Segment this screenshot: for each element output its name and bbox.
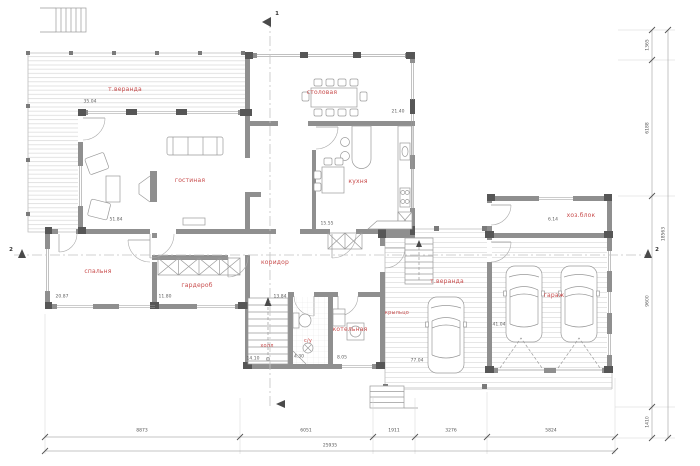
room-area-living: 51.84 — [110, 218, 123, 223]
section-marker-2-right: 2 — [655, 247, 659, 253]
dim-right-3: 1410 — [646, 416, 651, 427]
room-area-garage: 41.04 — [493, 323, 506, 328]
dining-room-furniture — [302, 79, 367, 116]
room-area-utility: 6.14 — [548, 218, 558, 223]
room-area-wardrobe: 11.80 — [159, 295, 172, 300]
room-area-wc: 4.30 — [294, 355, 304, 360]
room-area-boiler: 8.05 — [337, 356, 347, 361]
room-label-bedroom: спальня — [84, 269, 111, 275]
room-label-boiler: котельная — [333, 327, 368, 333]
corridor-closet — [328, 233, 362, 249]
staircase-main — [248, 297, 288, 364]
dim-bottom-3: 3276 — [445, 429, 456, 434]
room-area-carport: 77.04 — [411, 359, 424, 364]
dim-bottom-2: 1911 — [388, 429, 399, 434]
room-label-terrace: т.веранда — [108, 87, 142, 93]
steps-terrace-top — [40, 8, 86, 32]
floor-plan-drawing — [0, 0, 700, 466]
dim-bottom-0: 8873 — [136, 429, 147, 434]
dim-bottom-1: 6051 — [300, 429, 311, 434]
dim-right-0: 1365 — [646, 39, 651, 50]
car-garage-1 — [504, 266, 545, 342]
room-label-kitchen: кухня — [348, 179, 367, 185]
fireplace — [150, 171, 157, 202]
room-area-dining: 21.40 — [392, 110, 405, 115]
room-label-garage: гараж — [544, 293, 565, 299]
room-area-hall: 14.10 — [247, 357, 260, 362]
boiler-fixtures — [333, 309, 364, 340]
room-label-corridor: коридор — [261, 260, 289, 266]
room-area-kitchen: 15.55 — [321, 222, 334, 227]
room-label-wc: с/у — [304, 338, 312, 344]
dim-bottom-total: 25935 — [323, 444, 337, 449]
steps-porch-east — [405, 238, 433, 284]
room-area-corridor: 13.84 — [274, 295, 287, 300]
car-driveway — [426, 297, 467, 373]
room-label-carport: т.веранда — [430, 279, 464, 285]
room-label-hall: холл — [260, 343, 273, 349]
room-label-porch: крыльцо — [385, 310, 409, 316]
room-area-terrace: 35.04 — [84, 100, 97, 105]
room-label-living: гостиная — [175, 178, 205, 184]
section-marker-1-top: 1 — [275, 11, 279, 17]
dim-right-1: 6188 — [646, 122, 651, 133]
dim-right-2: 9600 — [646, 295, 651, 306]
room-label-dining: столовая — [307, 90, 337, 96]
section-marker-2-left: 2 — [9, 247, 13, 253]
dim-bottom-4: 5824 — [545, 429, 556, 434]
dim-right-total: 18563 — [662, 227, 667, 241]
car-garage-2 — [559, 266, 600, 342]
floor-plan: т.веранда гостиная столовая кухня спальн… — [0, 0, 700, 466]
room-area-bedroom: 20.87 — [56, 295, 69, 300]
room-label-utility: хоз.блок — [567, 213, 596, 219]
room-label-wardrobe: гардероб — [181, 283, 212, 289]
